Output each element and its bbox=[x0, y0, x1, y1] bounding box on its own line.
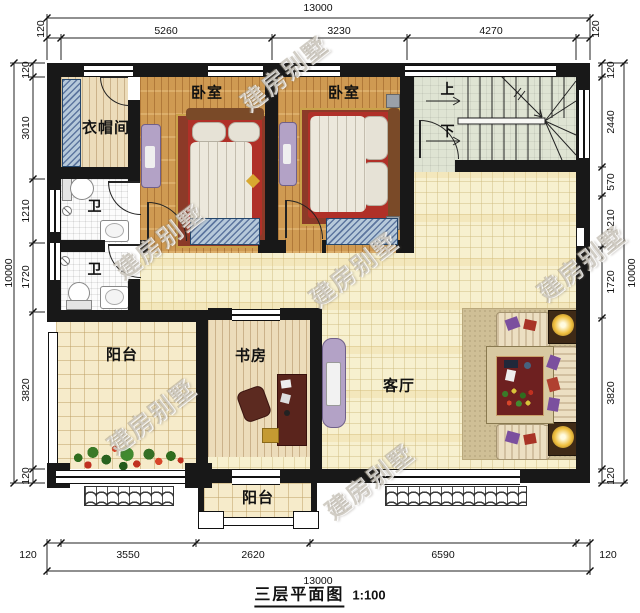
coffee-table-flowers bbox=[498, 382, 538, 412]
cushion-north-red bbox=[523, 319, 537, 331]
dim-right-120-bottom: 120 bbox=[605, 467, 617, 485]
dim-top-120-right: 120 bbox=[590, 20, 602, 38]
bedroom-left-dresser-front bbox=[145, 146, 155, 168]
dim-left-total: 10000 bbox=[3, 258, 15, 287]
balcony-step-left bbox=[198, 511, 224, 529]
dim-left-3010: 3010 bbox=[20, 116, 32, 139]
sofa-north bbox=[496, 312, 550, 348]
dim-top-3230: 3230 bbox=[327, 25, 350, 37]
wall-stairwell-south bbox=[455, 160, 576, 172]
sink-basin-upper bbox=[105, 223, 124, 238]
tv-screen bbox=[326, 362, 341, 406]
cushion-south-red bbox=[523, 433, 537, 445]
wall-study-east bbox=[310, 308, 322, 469]
floor-drain-upper bbox=[62, 206, 72, 216]
study-desk-lamp bbox=[284, 410, 290, 416]
dim-left-120-bottom: 120 bbox=[20, 467, 32, 485]
dim-bottom-120-left: 120 bbox=[19, 549, 37, 561]
balcony-left-sill bbox=[56, 470, 185, 484]
dim-top-total: 13000 bbox=[303, 2, 332, 14]
dim-left-120-top: 120 bbox=[20, 61, 32, 79]
wall-study-west bbox=[196, 310, 208, 469]
dim-bottom-3550: 3550 bbox=[116, 549, 139, 561]
door-leaf-cloakroom bbox=[100, 76, 128, 78]
window-study-balcony-door bbox=[232, 469, 280, 485]
toilet-tank-lower bbox=[66, 300, 92, 310]
door-leaf-bath-upper bbox=[108, 181, 140, 183]
dim-top-4270: 4270 bbox=[479, 25, 502, 37]
room-label-bedroom-right: 卧室 bbox=[328, 82, 360, 103]
lamp-glow-north bbox=[552, 314, 574, 336]
room-label-living: 客厅 bbox=[383, 375, 415, 396]
wall-study-north-a bbox=[208, 308, 232, 320]
wall-bottom-se bbox=[520, 469, 590, 483]
dim-right-1720: 1720 bbox=[605, 270, 617, 293]
dim-right-120-top: 120 bbox=[605, 61, 617, 79]
room-label-cloakroom: 衣帽间 bbox=[82, 117, 130, 138]
dim-right-570: 570 bbox=[605, 173, 617, 191]
room-label-balcony-left: 阳台 bbox=[106, 344, 138, 365]
room-label-bedroom-left: 卧室 bbox=[191, 82, 223, 103]
dim-right-2440: 2440 bbox=[605, 110, 617, 133]
wall-study-north-b bbox=[280, 308, 310, 320]
drawing-title: 三层平面图 1:100 bbox=[254, 581, 385, 608]
sofa-south bbox=[496, 424, 550, 460]
bedroom-left-pillow-2 bbox=[228, 122, 260, 142]
dim-right-3820: 3820 bbox=[605, 381, 617, 404]
dim-top-5260: 5260 bbox=[154, 25, 177, 37]
drawing-scale: 1:100 bbox=[352, 588, 385, 603]
bedroom-right-dresser-front bbox=[283, 144, 291, 164]
study-desk-paper-1 bbox=[280, 379, 291, 388]
window-right-stairwell bbox=[578, 90, 590, 158]
coffee-table-tray bbox=[504, 360, 518, 368]
balcony-left-railing bbox=[48, 332, 58, 467]
balcony-bottom-rail bbox=[210, 517, 305, 526]
roof-tile-hatch-right bbox=[385, 486, 527, 506]
bedroom-left-pillow-1 bbox=[192, 122, 226, 142]
door-leaf-bedroom-right bbox=[285, 200, 287, 238]
dim-bottom-2620: 2620 bbox=[241, 549, 264, 561]
window-top-stairwell bbox=[405, 65, 556, 77]
bedroom-right-headboard bbox=[388, 108, 400, 222]
dim-bottom-6590: 6590 bbox=[431, 549, 454, 561]
bedroom-right-duvet bbox=[310, 116, 366, 212]
sink-basin-lower bbox=[105, 289, 124, 305]
room-label-bath-upper: 卫 bbox=[88, 196, 103, 216]
stairs-down-label: 下 bbox=[441, 121, 456, 141]
dim-bottom-120-right: 120 bbox=[599, 549, 617, 561]
bedroom-right-nightstand-1 bbox=[386, 94, 400, 108]
window-left-bath-upper bbox=[49, 190, 61, 232]
room-label-bath-lower: 卫 bbox=[88, 259, 103, 279]
door-leaf-stairwell bbox=[419, 120, 421, 158]
coffee-table-bowl bbox=[524, 362, 531, 369]
room-label-study: 书房 bbox=[235, 345, 267, 366]
dim-left-1720: 1720 bbox=[20, 265, 32, 288]
drawing-title-text: 三层平面图 bbox=[254, 581, 344, 608]
stairs-up-label: 上 bbox=[441, 79, 456, 99]
lamp-glow-south bbox=[552, 426, 574, 448]
dim-right-total: 10000 bbox=[626, 258, 638, 287]
window-left-bath-lower bbox=[49, 243, 61, 280]
floor-drain-lower bbox=[60, 256, 70, 266]
dim-top-120-left: 120 bbox=[35, 20, 47, 38]
cushion-east-purple-2 bbox=[547, 397, 560, 412]
wall-bedroom-right-east bbox=[400, 77, 414, 253]
room-label-balcony-bottom: 阳台 bbox=[242, 487, 274, 508]
roof-tile-hatch-left bbox=[84, 486, 174, 506]
study-door-threshold bbox=[232, 309, 280, 321]
cloakroom-wardrobe bbox=[62, 79, 81, 167]
balcony-step-right bbox=[293, 511, 319, 529]
wall-bedroom-mid-base bbox=[258, 240, 286, 253]
wall-cloakroom-bedroom bbox=[128, 100, 140, 182]
wall-bottom-study-left bbox=[212, 469, 232, 483]
wall-cloakroom-bath bbox=[47, 167, 140, 179]
wall-bath-balcony bbox=[47, 310, 196, 322]
dim-left-1210: 1210 bbox=[20, 199, 32, 222]
study-side-box bbox=[262, 428, 279, 443]
dim-left-3820: 3820 bbox=[20, 378, 32, 401]
floor-plan-canvas: 13000 120 5260 3230 4270 120 10000 120 3… bbox=[0, 0, 640, 613]
